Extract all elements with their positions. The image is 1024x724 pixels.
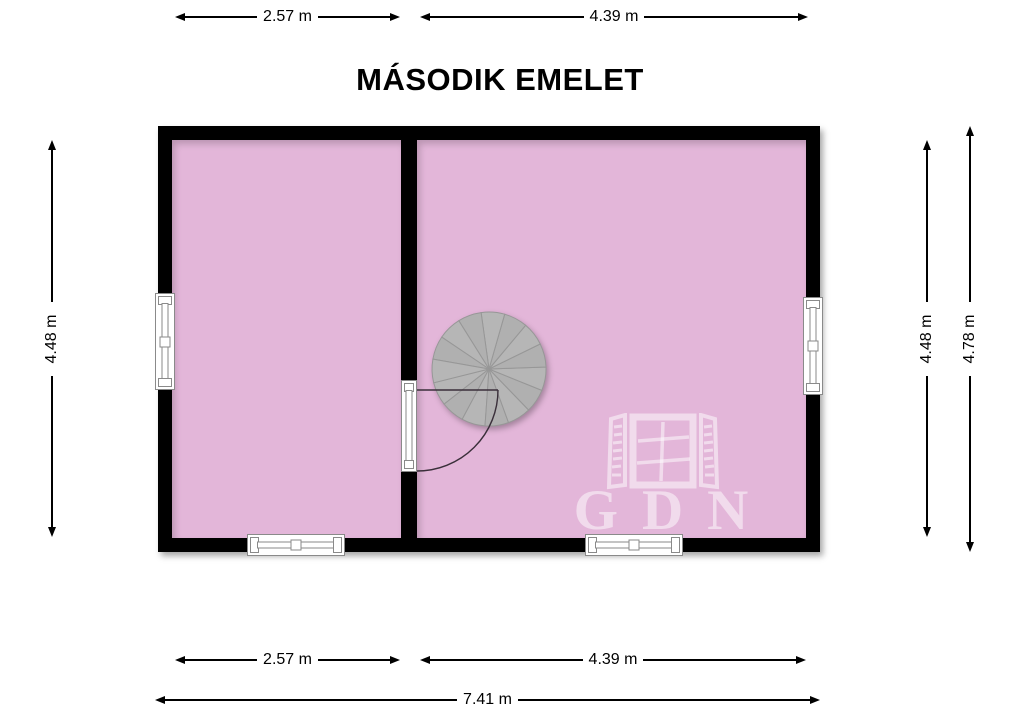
interior-door [401,380,417,472]
dimension-top-right-room: 4.39 m [420,9,808,25]
dimension-right-inner-height: 4.48 m [919,140,935,537]
arrow-right-icon [796,656,806,664]
arrow-left-icon [420,656,430,664]
dimension-right-outer-height: 4.78 m [962,126,978,552]
arrow-right-icon [798,13,808,21]
arrow-up-icon [923,140,931,150]
dimension-bottom-right-room: 4.39 m [420,652,806,668]
arrow-down-icon [48,527,56,537]
floor-plan: GDN [158,126,820,552]
arrow-left-icon [155,696,165,704]
arrow-left-icon [175,13,185,21]
arrow-left-icon [175,656,185,664]
window-right-wall [803,297,823,395]
arrow-right-icon [390,13,400,21]
page-title: MÁSODIK EMELET [100,62,900,98]
dimension-label: 4.39 m [583,652,644,668]
arrow-right-icon [390,656,400,664]
window-left-wall [155,293,175,390]
floorplan-page: MÁSODIK EMELET 2.57 m 4.39 m 4.48 m 4.48… [0,0,1024,724]
arrow-down-icon [966,542,974,552]
arrow-up-icon [48,140,56,150]
dimension-label: 4.39 m [584,9,645,25]
arrow-up-icon [966,126,974,136]
room-left [172,140,401,538]
arrow-left-icon [420,13,430,21]
window-bottom-left [247,534,345,556]
dimension-top-left-room: 2.57 m [175,9,400,25]
dimension-label: 4.48 m [918,314,936,363]
dimension-overall-width: 7.41 m [155,692,820,708]
dimension-bottom-left-room: 2.57 m [175,652,400,668]
dimension-left-height: 4.48 m [44,140,60,537]
dimension-label: 2.57 m [257,652,318,668]
dimension-label: 4.48 m [43,314,61,363]
window-bottom-right [585,534,683,556]
dimension-label: 4.78 m [961,315,979,364]
dimension-label: 2.57 m [257,9,318,25]
door-swing-arc [401,380,511,480]
arrow-right-icon [810,696,820,704]
arrow-down-icon [923,527,931,537]
dimension-label: 7.41 m [457,692,518,708]
